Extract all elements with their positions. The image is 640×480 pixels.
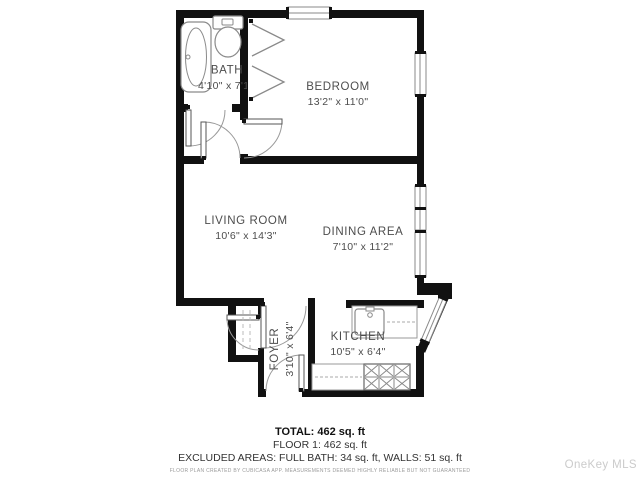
disclaimer-text: FLOOR PLAN CREATED BY CUBICASA APP. MEAS… bbox=[0, 468, 640, 474]
mls-watermark: OneKey MLS bbox=[565, 459, 637, 471]
living-room-name: LIVING ROOM bbox=[204, 214, 287, 229]
bath-dims: 4'10" x 7'1" bbox=[198, 80, 247, 92]
toilet-icon bbox=[213, 16, 243, 57]
window-dining-upper bbox=[415, 184, 426, 230]
kitchen-label: KITCHEN 10'5" x 6'4" bbox=[330, 330, 385, 360]
living-room-dims: 10'6" x 14'3" bbox=[204, 229, 287, 244]
dining-area-name: DINING AREA bbox=[323, 225, 404, 240]
bedroom-label: BEDROOM 13'2" x 11'0" bbox=[306, 80, 370, 110]
foyer-dims: 3'10" x 6'4" bbox=[283, 321, 298, 376]
bath-name: BATH bbox=[211, 64, 243, 79]
floor-plan-drawing bbox=[0, 0, 640, 425]
kitchen-name: KITCHEN bbox=[330, 330, 385, 345]
excluded-area-text: EXCLUDED AREAS: FULL BATH: 34 sq. ft, WA… bbox=[0, 452, 640, 464]
dining-area-label: DINING AREA 7'10" x 11'2" bbox=[323, 225, 404, 255]
dining-area-dims: 7'10" x 11'2" bbox=[323, 240, 404, 255]
floor-area-text: FLOOR 1: 462 sq. ft bbox=[0, 439, 640, 451]
bedroom-dims: 13'2" x 11'0" bbox=[306, 95, 370, 110]
bath-label: BATH bbox=[211, 64, 243, 79]
living-room-label: LIVING ROOM 10'6" x 14'3" bbox=[204, 214, 287, 244]
area-summary: TOTAL: 462 sq. ft FLOOR 1: 462 sq. ft EX… bbox=[0, 426, 640, 474]
bedroom-name: BEDROOM bbox=[306, 80, 370, 95]
window-dining-lower bbox=[415, 230, 426, 278]
closet-doors-bedroom bbox=[249, 19, 284, 101]
total-area-text: TOTAL: 462 sq. ft bbox=[0, 426, 640, 438]
floor-plan-page: BATH 4'10" x 7'1" BEDROOM 13'2" x 11'0" … bbox=[0, 0, 640, 480]
foyer-label: FOYER 3'10" x 6'4" bbox=[268, 321, 298, 376]
door-bedroom bbox=[242, 119, 282, 158]
window-bedroom-top bbox=[286, 7, 332, 19]
kitchen-dims: 10'5" x 6'4" bbox=[330, 345, 385, 360]
window-bedroom-right bbox=[415, 51, 426, 97]
stove-icon bbox=[364, 364, 410, 390]
foyer-name: FOYER bbox=[268, 321, 283, 376]
kitchen-counter-stove bbox=[312, 364, 410, 390]
